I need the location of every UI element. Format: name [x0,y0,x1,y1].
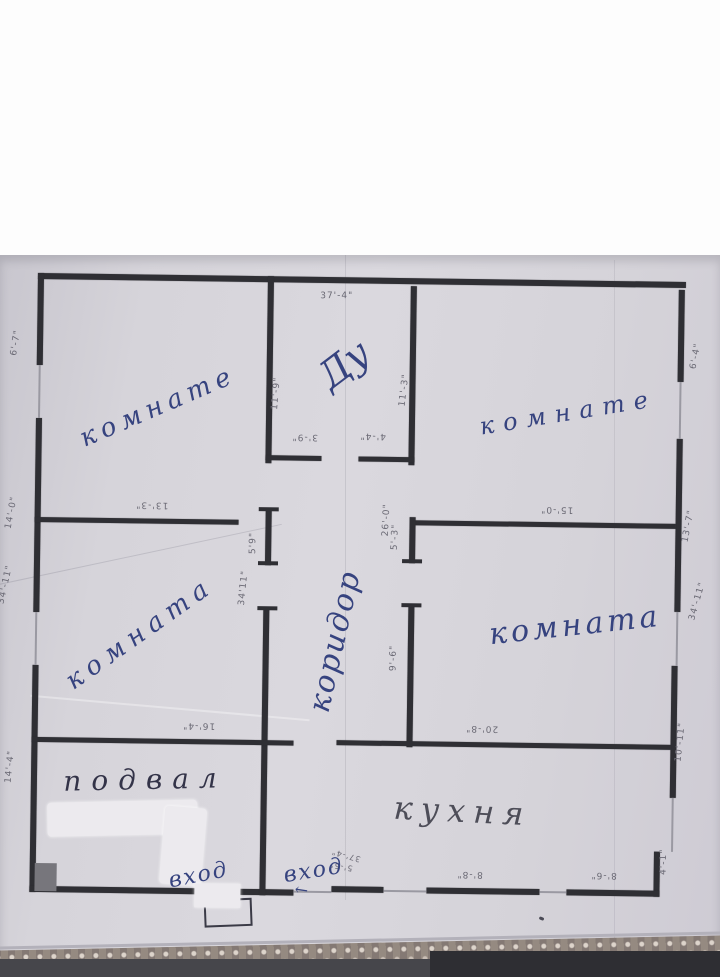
room-label-top-right: комнате [478,384,659,440]
outer-wall-left [37,273,44,365]
outer-wall-bottom [238,889,293,896]
window-sill [539,891,566,893]
kitchen-top-wall [336,740,670,750]
dim-bottom-right: 8'-6" [590,870,616,880]
dim-left-top: 6'-7" [9,329,23,357]
dim-kitchen-top: 20'-8" [465,723,498,733]
dim-left-bottom: 14'-4" [3,750,16,784]
dim-divider-right: 15'-0" [540,504,573,514]
basement-top-wall [31,737,293,746]
dim-bottom-mid: 8'-8" [456,869,482,879]
dim-left-mid: 14'-0" [4,495,20,529]
dim-right-top: 6'-4" [689,342,704,370]
wall-cap [401,603,421,607]
entrance-label-main: вход [282,854,346,888]
outer-wall-bottom [566,889,659,896]
pen-mark [539,916,545,921]
outer-wall-top [38,273,686,288]
outer-wall-left [29,665,38,892]
dim-right-mid: 13'-7" [681,509,697,543]
divider-wall-left [35,517,239,525]
wall-stub [265,509,272,565]
dim-basement-top: 16'-4" [182,720,215,730]
outer-wall-left [33,418,42,612]
window-sill [383,890,426,893]
floor-plan-drawing: 37'-4" 6'-7" 6'-4" 11'-9" 11'-3" 3'-9" 4… [0,254,720,977]
dim-right-total: 34'-11" [687,581,707,622]
scanned-floor-plan-page: 37'-4" 6'-7" 6'-4" 11'-9" 11'-3" 3'-9" 4… [0,0,720,977]
dim-stub-left: 5'9" [248,532,258,554]
dim-vestibule-left: 11'-9" [270,376,283,410]
room-label-mid-right: комната [487,599,663,652]
dim-corner-stub: 4'-1" [659,849,669,875]
window-sill [35,612,38,665]
window-sill [676,612,679,666]
dim-corridor-total: 34'11" [237,570,251,606]
outer-wall-bottom [426,887,539,895]
room-label-basement: подвал [63,761,227,797]
room-label-vestibule: Ду [309,331,378,398]
room-label-kitchen: кухня [393,789,533,834]
dark-table-corner [430,951,720,977]
divider-wall-right [412,520,676,529]
wall-cap [402,559,422,563]
dim-divider-left: 13'-3" [135,499,168,509]
dim-vestibule-door-left: 3'-9" [292,432,318,442]
vestibule-wall-bottom [358,456,414,462]
corridor-wall-right [406,605,414,747]
dim-left-total: 34'-11" [0,564,15,605]
outer-wall-right [674,439,682,612]
window-sill [679,382,682,439]
room-label-mid-left: комната [60,571,220,696]
window-sill [38,365,41,418]
wall-cap [259,507,279,511]
corridor-wall-left [259,608,269,895]
vestibule-wall-bottom [265,455,321,461]
window-sill [671,798,674,852]
dim-vestibule-door-right: 4'-4" [360,430,386,440]
wall-stub [409,517,416,563]
room-label-top-left: комнате [75,360,241,454]
dim-stub-right: 5'-3" [390,524,401,551]
wall-cap [258,561,278,565]
outer-wall-right [678,290,685,382]
outer-wall-bottom [331,886,383,893]
entrance-arrow: ← [293,879,309,900]
room-label-corridor: коридор [302,567,368,716]
photo-of-paper: 37'-4" 6'-7" 6'-4" 11'-9" 11'-3" 3'-9" 4… [0,255,720,977]
wall-cap [257,606,277,610]
shaded-corner-block [34,863,56,891]
dim-top-width: 37'-4" [320,291,353,301]
dim-midright-wall: 9'-6" [389,645,399,671]
vestibule-wall-left [265,276,274,463]
